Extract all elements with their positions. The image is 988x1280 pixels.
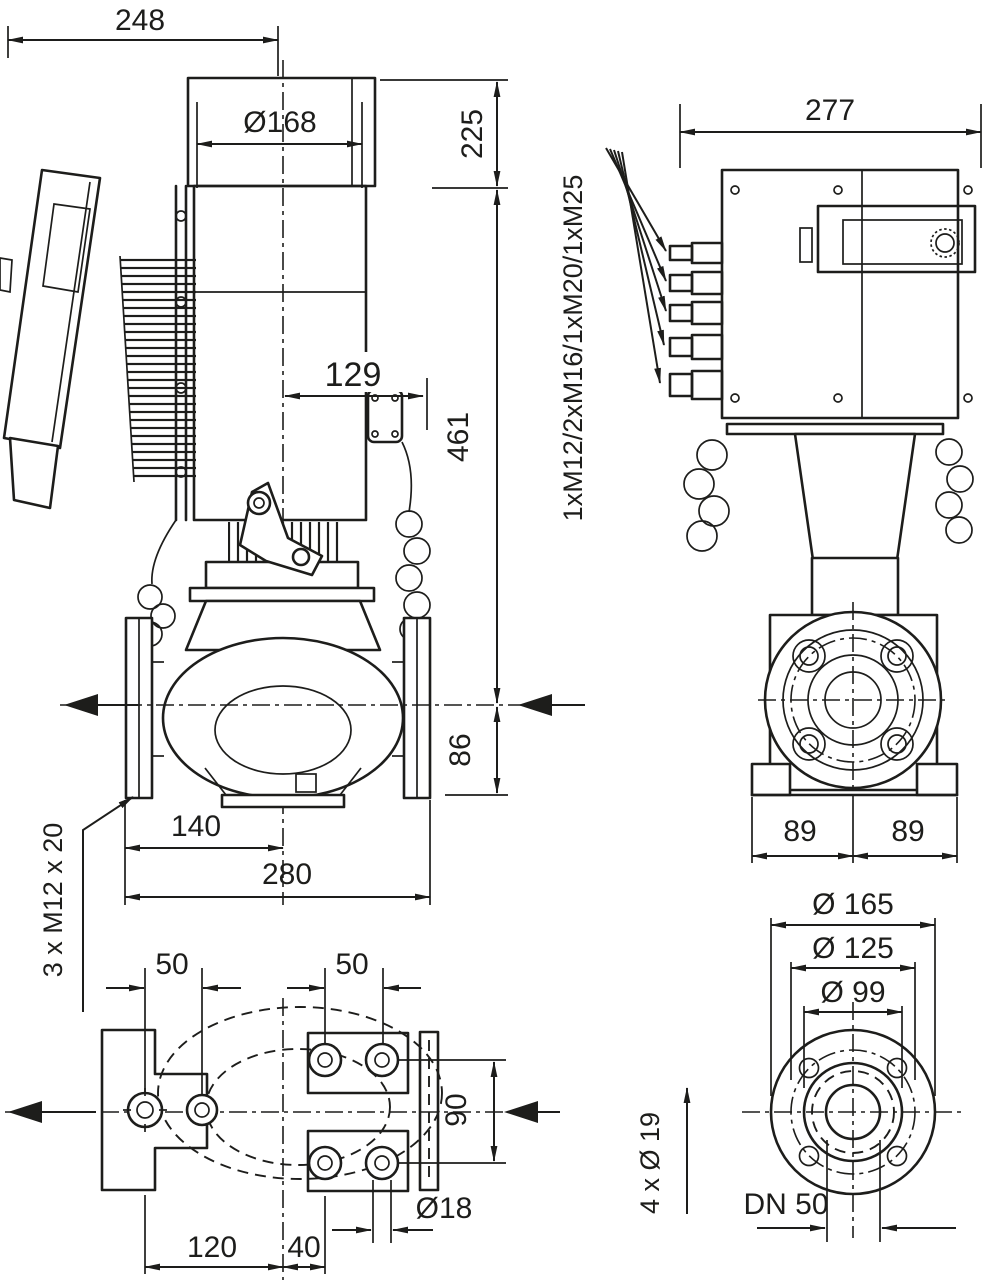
dim-flange-to-center-label: 140: [171, 810, 221, 843]
dim-bolt-spacing-right-label: 50: [335, 948, 368, 981]
foot-plates: [102, 1030, 438, 1191]
dim-height-axis-to-base-label: 86: [444, 733, 477, 766]
base-bolts-callout: 3 x M12 x 20: [38, 797, 133, 1012]
dim-flange-half-left-label: 89: [783, 815, 816, 848]
dim-bolt-circle-diameter-label: Ø 125: [812, 932, 894, 965]
dim-flange-half-right-label: 89: [891, 815, 924, 848]
dim-raised-face-diameter-label: Ø 99: [820, 976, 885, 1009]
dim-center-to-bolt-label: 40: [287, 1231, 320, 1264]
dim-height-top-label: 225: [456, 109, 489, 159]
drawing-svg: 248 Ø168 225 461 86: [0, 0, 988, 1280]
dim-overall-width-label: 248: [115, 4, 165, 37]
dim-flange-to-flange-label: 280: [262, 858, 312, 891]
bolt-holes-label: 4 x Ø 19: [635, 1112, 665, 1214]
flow-direction-arrow-right: [518, 694, 585, 716]
dim-flange-to-center: 140: [125, 800, 283, 905]
dim-module-offset: 129: [285, 352, 427, 430]
coiled-cable-right: [396, 442, 430, 640]
cable-glands-callout: 1xM12/2xM16/1xM20/1xM25: [558, 148, 666, 521]
dim-bolt-to-center-label: 120: [187, 1231, 237, 1264]
dim-foot-hole-diameter-label: Ø18: [416, 1192, 473, 1225]
dim-flange-half-widths: 89 89: [752, 797, 957, 863]
display-panel: [818, 206, 975, 272]
dim-flange-outer-diameter-label: Ø 165: [812, 888, 894, 921]
side-view: 277: [558, 94, 981, 863]
dim-overall-depth-label: 277: [805, 94, 855, 127]
dim-motor-diameter: Ø168: [197, 102, 362, 188]
dim-bolt-spacing-right: 50: [287, 948, 421, 1043]
dim-module-offset-label: 129: [325, 356, 382, 394]
dim-bolt-spacing-left: 50: [106, 948, 241, 1094]
pump-housing: [126, 483, 430, 807]
nominal-diameter-label: DN 50: [743, 1188, 828, 1221]
flange-detail-view: Ø 165 Ø 125 Ø 99 4 x Ø 19 DN 50: [635, 888, 964, 1242]
dim-foot-spacing-bottom: 120 40: [145, 1195, 325, 1274]
pump-side-lower: [684, 424, 973, 800]
flow-direction-arrow-right-foot: [504, 1101, 560, 1123]
dim-bolt-spacing-vertical-label: 90: [440, 1093, 473, 1126]
dim-overall-depth: 277: [680, 94, 981, 168]
electronics-box-side: [722, 170, 975, 418]
motor-cooling-fins: [120, 256, 196, 482]
cable-glands-label: 1xM12/2xM16/1xM20/1xM25: [558, 175, 588, 522]
cable-glands: [670, 243, 722, 399]
dim-overall-width: 248: [8, 4, 278, 76]
front-view: 248 Ø168 225 461 86: [0, 4, 585, 1012]
dim-height-axis-to-top-label: 461: [442, 412, 475, 462]
dim-bolt-spacing-left-label: 50: [155, 948, 188, 981]
pump-dimensional-drawing: 248 Ø168 225 461 86: [0, 0, 988, 1280]
flow-direction-arrow-left-foot: [8, 1101, 96, 1123]
dim-motor-diameter-label: Ø168: [243, 106, 316, 139]
dim-height-axis-to-base: 86: [444, 707, 508, 795]
bolt-holes-callout: 4 x Ø 19: [635, 1088, 687, 1214]
electronic-module: [0, 170, 100, 508]
dim-foot-hole-diameter: Ø18: [332, 1180, 472, 1243]
dim-height-top: 225: [380, 80, 508, 188]
base-bolts-label: 3 x M12 x 20: [38, 823, 68, 978]
junction-box: [368, 390, 402, 442]
base-foot: [222, 795, 344, 807]
foot-plan-view: 50 50 90 Ø18: [5, 948, 560, 1280]
dim-height-axis-to-top: 461: [442, 190, 497, 703]
